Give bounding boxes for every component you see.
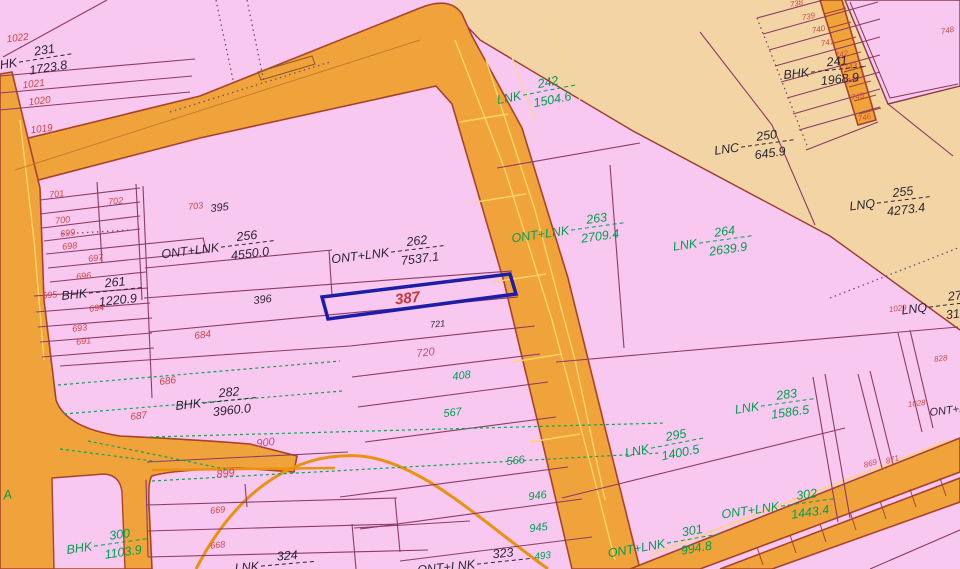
parcel-number-label: 668 [210, 539, 226, 551]
svg-text:27: 27 [946, 288, 960, 304]
parcel-number-label: 684 [194, 329, 212, 342]
svg-text:324: 324 [276, 548, 298, 564]
selected-parcel-number: 387 [394, 288, 422, 308]
parcel-number-label: 720 [416, 346, 437, 360]
svg-text:241: 241 [825, 53, 848, 69]
svg-text:BHK: BHK [61, 286, 89, 303]
parcel-number-label: 686 [159, 375, 177, 388]
parcel-number-label: 695 [42, 289, 59, 301]
svg-text:262: 262 [405, 233, 428, 250]
parcel-number-label: 721 [430, 318, 446, 330]
parcel-number-label: 669 [210, 504, 226, 516]
parcel-number-label: 493 [534, 550, 552, 563]
svg-text:302: 302 [795, 486, 818, 503]
parcel-number-label: 899 [216, 467, 236, 481]
parcel-number-label: 946 [528, 489, 549, 503]
svg-text:300: 300 [108, 526, 131, 543]
parcel-number-label: 699 [60, 227, 76, 239]
svg-text:261: 261 [103, 274, 126, 290]
svg-text:255: 255 [891, 184, 914, 201]
parcel-number-label: 396 [253, 293, 274, 307]
parcel-number-label: 701 [49, 188, 65, 200]
parcel-number-label: 702 [108, 195, 124, 207]
parcel-number-label: 697 [88, 252, 105, 264]
parcel-number-label: 900 [256, 436, 277, 450]
parcel-number-label: 945 [529, 521, 550, 535]
parcel-number-label: 395 [210, 201, 231, 215]
parcel-number-label: A [1, 487, 12, 503]
svg-text:282: 282 [217, 384, 240, 400]
map-viewport[interactable]: 1022102110201019701702700699698697696695… [0, 0, 960, 569]
parcel-number-label: 828 [934, 353, 949, 364]
parcel-number-label: 566 [506, 454, 527, 468]
parcel-number-label: 691 [76, 335, 92, 347]
svg-text:323: 323 [492, 545, 514, 561]
svg-text:LNK: LNK [234, 559, 260, 569]
parcel-number-label: 703 [188, 200, 204, 212]
parcel-number-label: 698 [62, 240, 78, 252]
parcel-number-label: 567 [443, 406, 464, 420]
svg-text:316.: 316. [945, 305, 960, 322]
svg-text:BHK: BHK [783, 65, 811, 82]
parcel-number-label: 687 [130, 410, 148, 423]
svg-text:BHK: BHK [175, 396, 203, 413]
cadastral-map[interactable]: 1022102110201019701702700699698697696695… [0, 0, 960, 569]
parcel-number-label: 693 [72, 322, 88, 334]
parcel-number-label: 700 [55, 214, 71, 226]
svg-text:256: 256 [235, 228, 258, 245]
parcel-number-label: 696 [76, 270, 92, 282]
parcel-number-label: 408 [452, 369, 473, 383]
